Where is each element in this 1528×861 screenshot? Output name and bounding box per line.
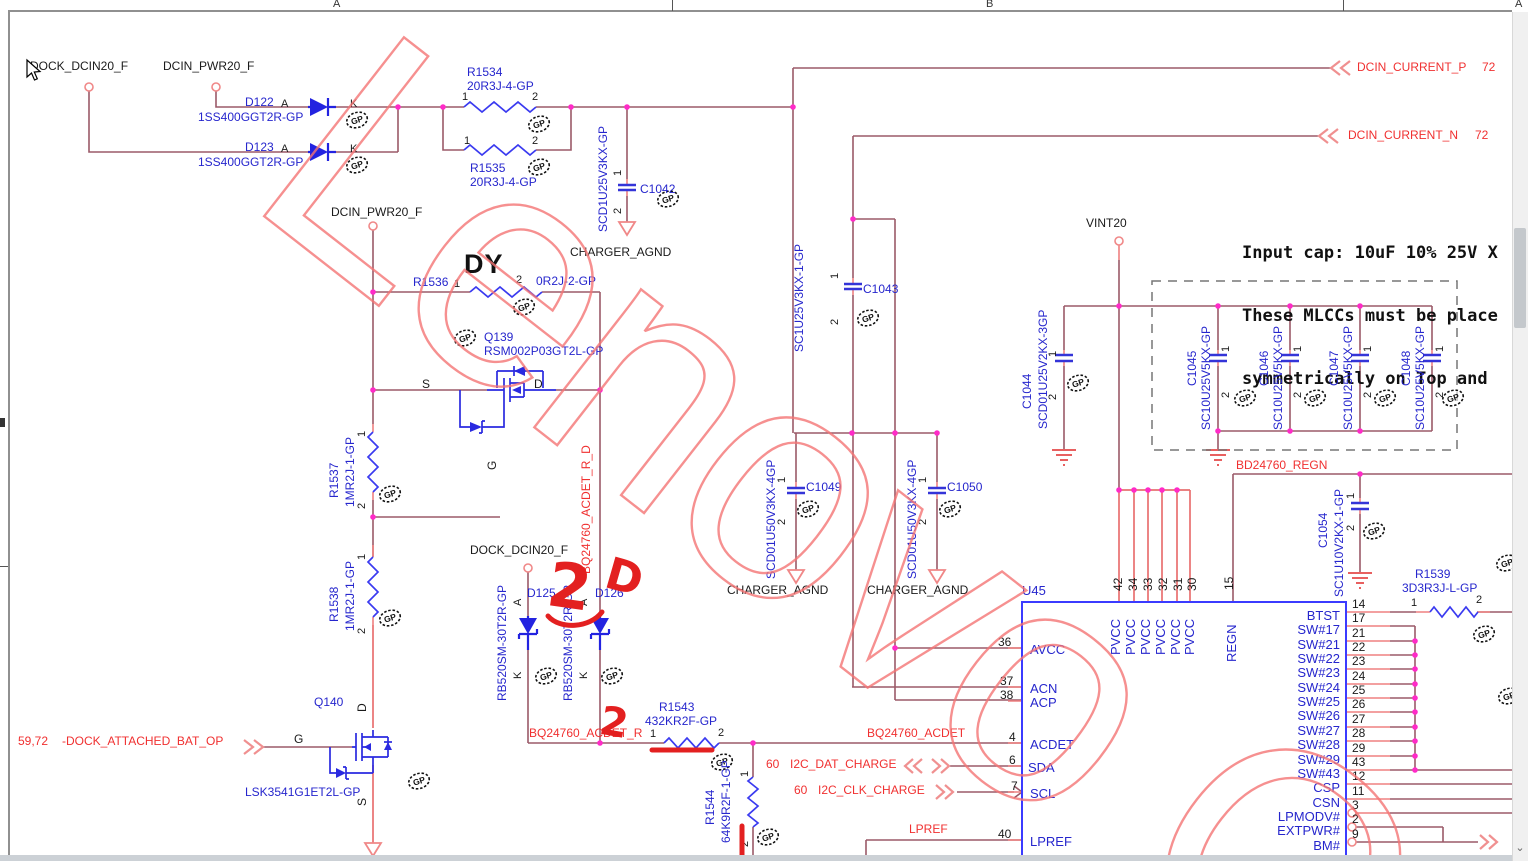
schematic-viewer: GPGPGPGPGPGPGPGPGPGPGPGPGPGPGPGPGPGPGPGP… [0,0,1528,861]
mouse-cursor-icon [0,0,1528,861]
